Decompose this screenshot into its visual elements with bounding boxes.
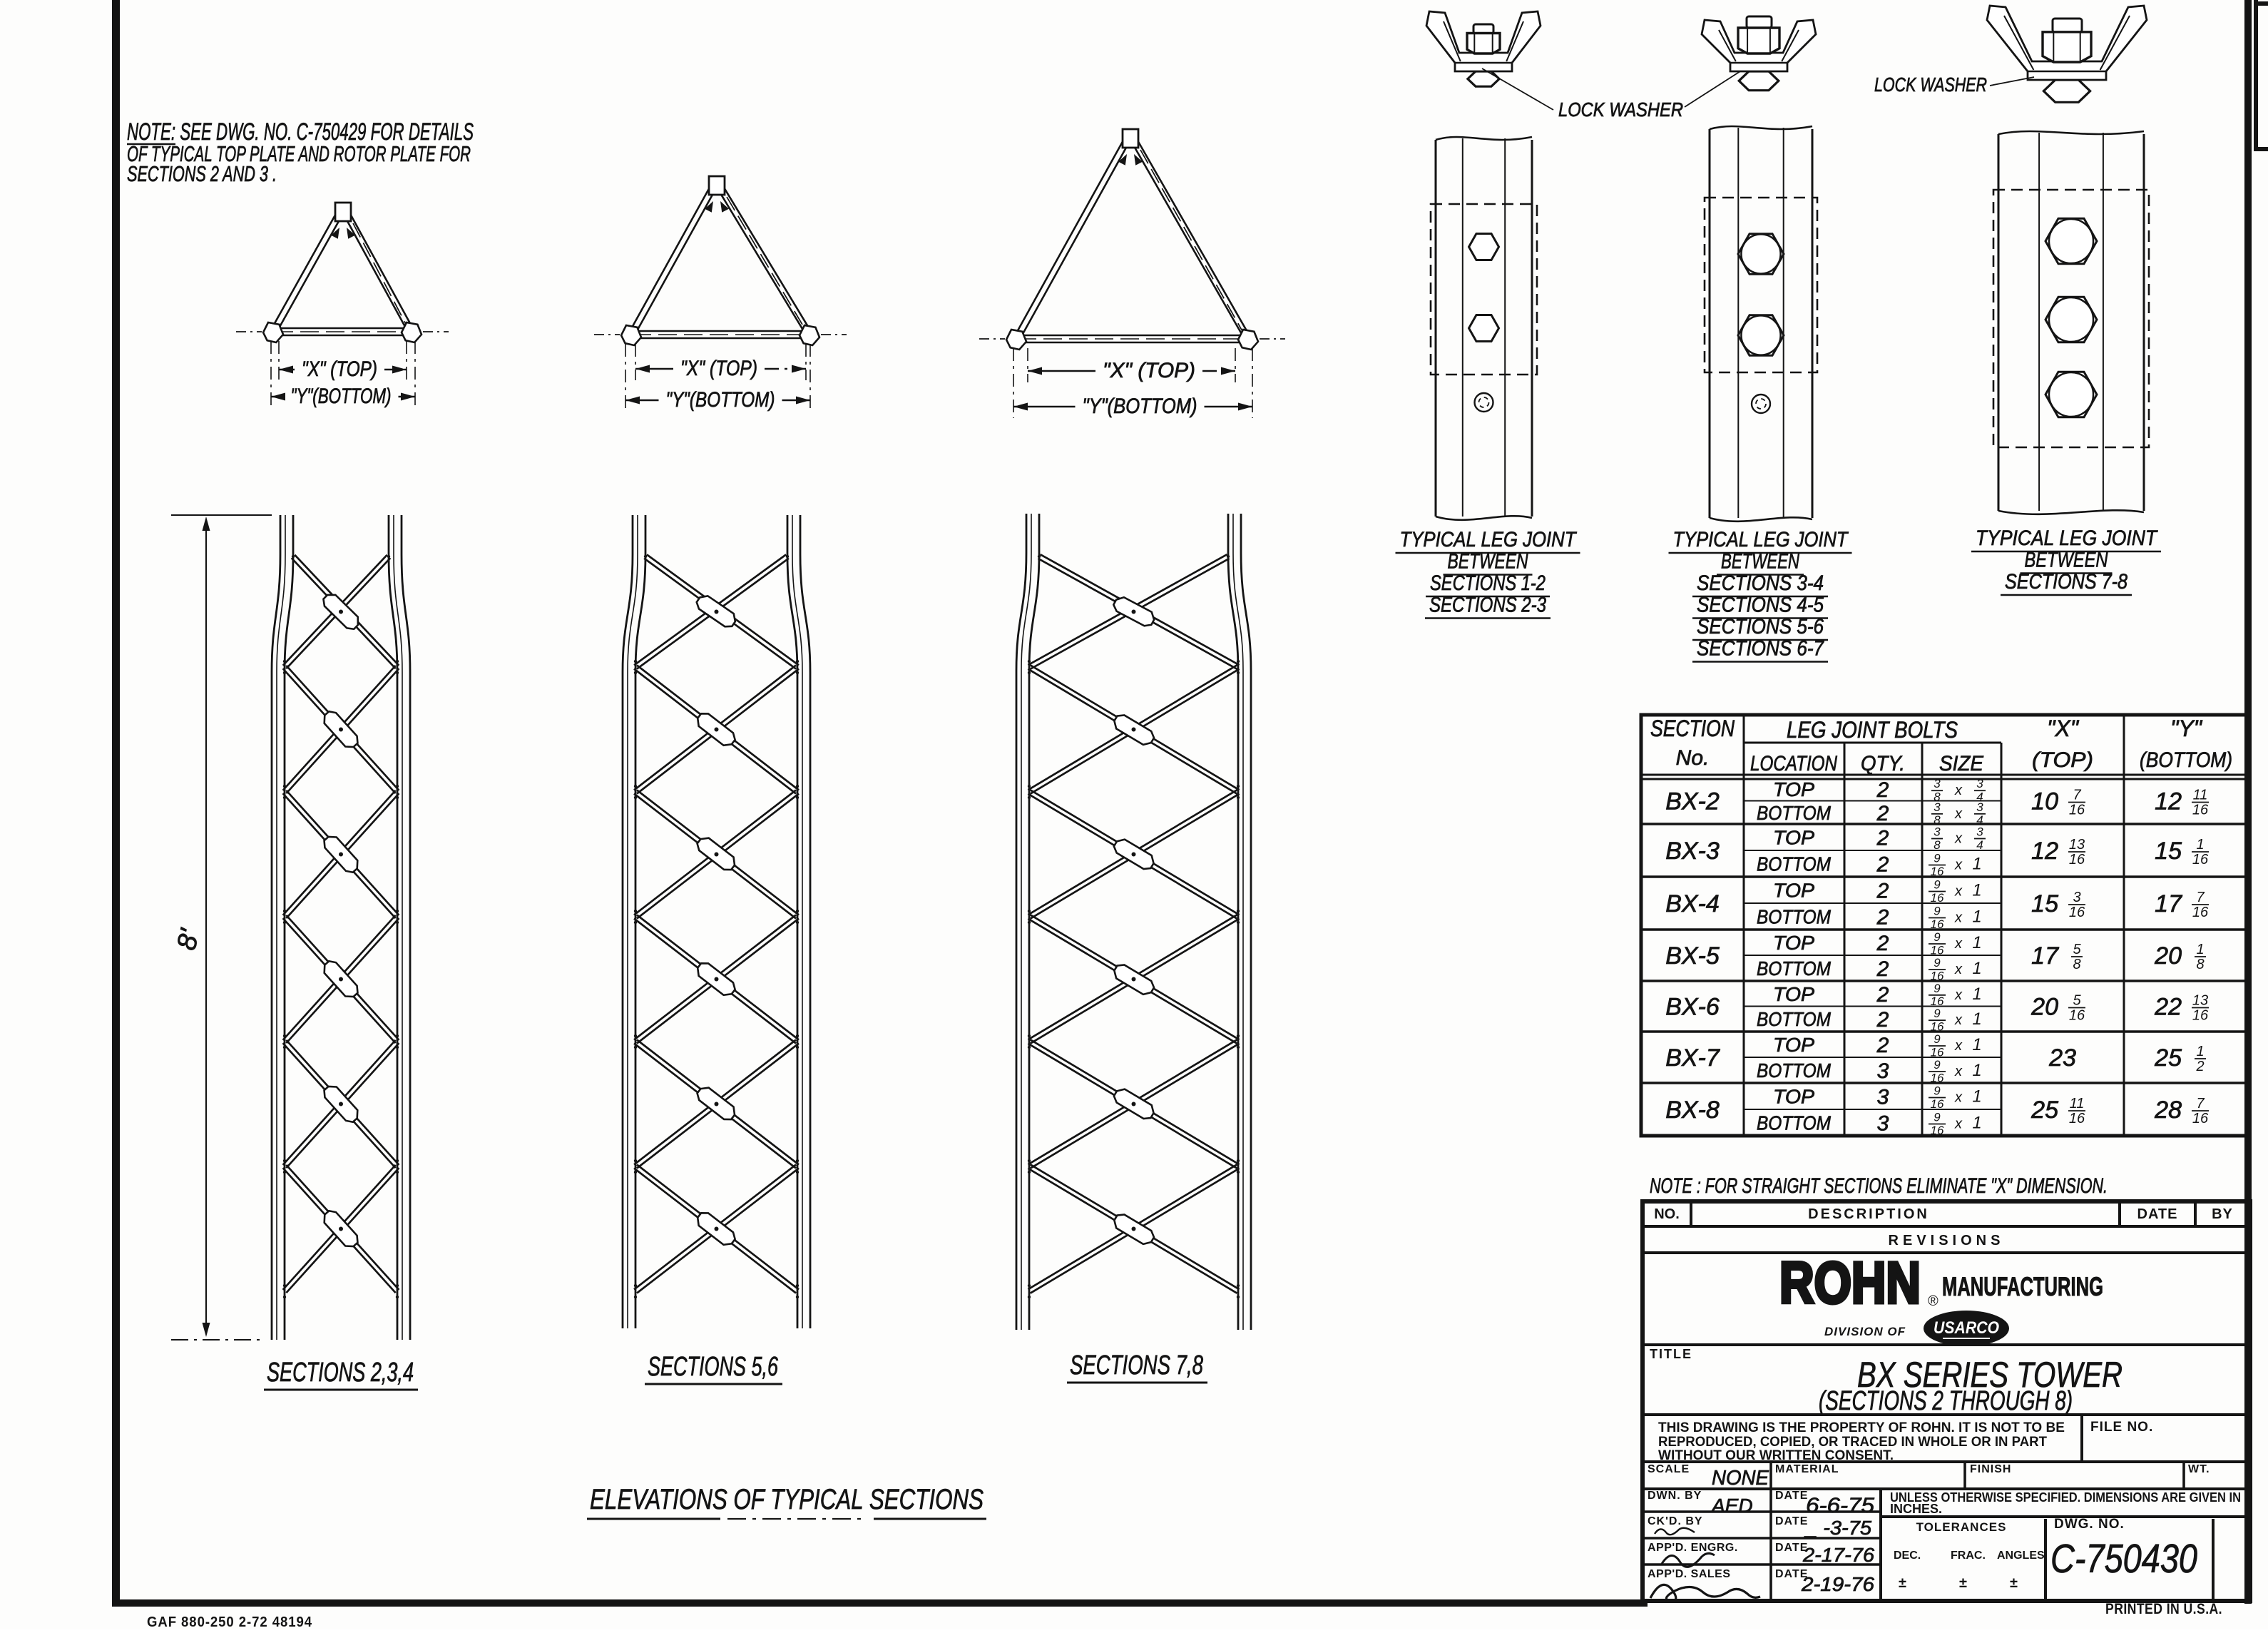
svg-text:17: 17 xyxy=(2031,942,2059,970)
svg-text:MANUFACTURING: MANUFACTURING xyxy=(1942,1272,2103,1301)
svg-text:BX-7: BX-7 xyxy=(1665,1044,1720,1072)
svg-text:16: 16 xyxy=(1931,944,1944,957)
svg-text:NONE: NONE xyxy=(1712,1467,1769,1490)
svg-text:4: 4 xyxy=(1976,838,1983,852)
svg-text:(BOTTOM): (BOTTOM) xyxy=(2140,748,2232,772)
svg-text:23: 23 xyxy=(2048,1044,2076,1072)
svg-text:x: x xyxy=(1954,936,1963,952)
svg-text:1: 1 xyxy=(1972,907,1981,927)
svg-text:9: 9 xyxy=(1934,930,1941,944)
svg-text:BETWEEN: BETWEEN xyxy=(1721,550,1799,574)
svg-text:16: 16 xyxy=(2192,1111,2209,1126)
svg-text:±: ± xyxy=(1899,1575,1906,1591)
svg-text:BX-8: BX-8 xyxy=(1665,1097,1720,1124)
svg-text:ELEVATIONS OF TYPICAL SECTI: ELEVATIONS OF TYPICAL SECTIONS xyxy=(590,1484,984,1515)
svg-text:1: 1 xyxy=(2196,942,2204,957)
svg-text:9: 9 xyxy=(1934,982,1941,995)
svg-text:x: x xyxy=(1954,910,1963,926)
svg-text:TOP: TOP xyxy=(1773,1034,1814,1056)
svg-text:®: ® xyxy=(1928,1293,1938,1309)
svg-text:LOCK WASHER: LOCK WASHER xyxy=(1558,98,1683,121)
svg-text:LOCATION: LOCATION xyxy=(1750,752,1837,775)
svg-text:22: 22 xyxy=(2154,994,2182,1021)
svg-text:APP'D. SALES: APP'D. SALES xyxy=(1648,1568,1731,1580)
svg-text:3: 3 xyxy=(1877,1112,1889,1136)
svg-text:3: 3 xyxy=(1877,1059,1889,1083)
svg-text:10: 10 xyxy=(2031,788,2058,815)
svg-text:2-17-76: 2-17-76 xyxy=(1802,1544,1874,1566)
svg-text:7: 7 xyxy=(2196,1096,2205,1111)
svg-text:9: 9 xyxy=(1934,852,1941,865)
svg-text:1: 1 xyxy=(1972,959,1981,978)
svg-text:SECTION: SECTION xyxy=(1650,716,1735,741)
svg-text:16: 16 xyxy=(2069,1008,2085,1024)
svg-text:2: 2 xyxy=(1876,906,1889,930)
svg-text:TOP: TOP xyxy=(1773,827,1814,849)
svg-text:16: 16 xyxy=(1931,865,1944,878)
svg-text:16: 16 xyxy=(2069,905,2085,920)
svg-text:1: 1 xyxy=(1972,1061,1981,1080)
svg-text:UNLESS OTHERWISE SPECIFIED. DI: UNLESS OTHERWISE SPECIFIED. DIMENSIONS A… xyxy=(1890,1490,2241,1505)
svg-text:9: 9 xyxy=(1934,878,1941,892)
svg-text:17: 17 xyxy=(2155,890,2182,917)
svg-text:2: 2 xyxy=(1876,983,1889,1007)
svg-text:_ -3-75: _ -3-75 xyxy=(1804,1517,1872,1539)
svg-text:16: 16 xyxy=(1931,891,1944,905)
svg-text:5: 5 xyxy=(2073,942,2081,957)
svg-text:9: 9 xyxy=(1934,905,1941,918)
svg-text:1: 1 xyxy=(1972,1087,1981,1107)
svg-text:16: 16 xyxy=(1931,970,1944,983)
svg-text:12: 12 xyxy=(2031,838,2058,865)
svg-text:3: 3 xyxy=(1934,800,1941,814)
svg-text:x: x xyxy=(1954,1116,1963,1132)
svg-text:TOP: TOP xyxy=(1773,983,1814,1005)
svg-text:DESCRIPTION: DESCRIPTION xyxy=(1808,1206,1929,1222)
svg-text:9: 9 xyxy=(1934,1084,1941,1098)
svg-text:PRINTED IN U.S.A.: PRINTED IN U.S.A. xyxy=(2105,1601,2222,1617)
svg-text:DWN. BY: DWN. BY xyxy=(1648,1490,1702,1502)
svg-text:SECTIONS 7-8: SECTIONS 7-8 xyxy=(2005,570,2127,594)
svg-text:WT.: WT. xyxy=(2188,1463,2210,1475)
svg-text:BOTTOM: BOTTOM xyxy=(1757,1008,1832,1030)
svg-text:TOP: TOP xyxy=(1773,932,1814,954)
svg-text:SECTIONS 2-3: SECTIONS 2-3 xyxy=(1429,594,1546,617)
svg-text:SIZE: SIZE xyxy=(1939,752,1984,775)
svg-text:SECTIONS 5,6: SECTIONS 5,6 xyxy=(648,1352,779,1382)
svg-text:3: 3 xyxy=(1976,800,1983,814)
svg-text:"Y": "Y" xyxy=(2170,716,2203,741)
svg-text:3: 3 xyxy=(1934,777,1941,790)
svg-text:NO.: NO. xyxy=(1654,1206,1680,1222)
svg-text:"Y"(BOTTOM): "Y"(BOTTOM) xyxy=(666,388,775,412)
svg-text:SECTIONS 2,3,4: SECTIONS 2,3,4 xyxy=(267,1358,414,1388)
svg-text:±: ± xyxy=(2010,1575,2018,1591)
svg-text:x: x xyxy=(1954,806,1963,822)
svg-text:x: x xyxy=(1954,783,1963,798)
svg-text:3: 3 xyxy=(1877,1086,1889,1109)
svg-text:SECTIONS 1-2: SECTIONS 1-2 xyxy=(1430,571,1546,595)
svg-text:2-19-76: 2-19-76 xyxy=(1801,1573,1875,1595)
svg-text:3: 3 xyxy=(1976,825,1983,839)
svg-text:16: 16 xyxy=(2192,1008,2209,1024)
svg-text:C-750430: C-750430 xyxy=(2050,1536,2197,1582)
svg-text:DWG. NO.: DWG. NO. xyxy=(2054,1517,2125,1532)
svg-text:3: 3 xyxy=(1934,825,1941,839)
svg-text:±: ± xyxy=(1959,1575,1967,1591)
svg-text:CK'D. BY: CK'D. BY xyxy=(1648,1515,1703,1527)
svg-text:SECTIONS 6-7: SECTIONS 6-7 xyxy=(1697,637,1824,661)
svg-text:TOLERANCES: TOLERANCES xyxy=(1916,1520,2007,1534)
svg-text:THIS DRAWING IS THE PROPERTY O: THIS DRAWING IS THE PROPERTY OF ROHN. IT… xyxy=(1658,1420,2065,1435)
svg-text:9: 9 xyxy=(1934,1111,1941,1124)
svg-text:BX-2: BX-2 xyxy=(1665,788,1720,815)
svg-text:NOTE : FOR STRAIGHT SECTIONS: NOTE : FOR STRAIGHT SECTIONS ELIMINATE "… xyxy=(1650,1174,2108,1198)
svg-text:x: x xyxy=(1954,1012,1963,1028)
svg-text:INCHES.: INCHES. xyxy=(1890,1502,1942,1516)
svg-text:1: 1 xyxy=(1972,933,1981,952)
svg-text:FILE NO.: FILE NO. xyxy=(2090,1420,2153,1435)
svg-text:2: 2 xyxy=(1876,802,1889,825)
svg-text:1: 1 xyxy=(1972,881,1981,900)
svg-text:BOTTOM: BOTTOM xyxy=(1757,853,1832,875)
svg-text:BOTTOM: BOTTOM xyxy=(1757,1112,1832,1134)
svg-text:25: 25 xyxy=(2154,1044,2182,1072)
svg-text:2: 2 xyxy=(1876,880,1889,903)
svg-text:No.: No. xyxy=(1676,746,1710,770)
svg-text:1: 1 xyxy=(1972,855,1981,874)
svg-text:BOTTOM: BOTTOM xyxy=(1757,957,1832,980)
svg-text:15: 15 xyxy=(2155,838,2182,865)
svg-text:MATERIAL: MATERIAL xyxy=(1775,1463,1839,1475)
svg-text:TOP: TOP xyxy=(1773,778,1814,800)
svg-text:2: 2 xyxy=(1876,778,1889,802)
svg-text:1: 1 xyxy=(1972,985,1981,1004)
svg-text:APP'D. ENGRG.: APP'D. ENGRG. xyxy=(1648,1542,1738,1554)
svg-text:AED: AED xyxy=(1710,1495,1753,1517)
svg-text:DIVISION OF: DIVISION OF xyxy=(1824,1325,1906,1338)
svg-text:5: 5 xyxy=(2073,993,2081,1009)
svg-text:2: 2 xyxy=(1876,853,1889,877)
svg-text:16: 16 xyxy=(2192,852,2209,868)
svg-text:BOTTOM: BOTTOM xyxy=(1757,802,1832,824)
svg-text:16: 16 xyxy=(2069,803,2085,818)
svg-text:ANGLES: ANGLES xyxy=(1997,1550,2045,1562)
svg-text:BX-4: BX-4 xyxy=(1665,890,1720,917)
svg-text:7: 7 xyxy=(2196,890,2205,905)
svg-text:13: 13 xyxy=(2192,993,2208,1009)
svg-text:BETWEEN: BETWEEN xyxy=(2025,549,2108,572)
svg-text:2: 2 xyxy=(1876,827,1889,850)
svg-text:TYPICAL LEG JOINT: TYPICAL LEG JOINT xyxy=(1976,526,2158,550)
svg-text:x: x xyxy=(1954,1038,1963,1054)
svg-text:BX-6: BX-6 xyxy=(1665,994,1720,1021)
svg-text:"X" (TOP): "X" (TOP) xyxy=(302,357,377,381)
svg-text:TYPICAL LEG JOINT: TYPICAL LEG JOINT xyxy=(1400,528,1578,551)
svg-text:"X" (TOP): "X" (TOP) xyxy=(680,357,757,380)
svg-text:WITHOUT OUR WRITTEN CONSENT.: WITHOUT OUR WRITTEN CONSENT. xyxy=(1658,1448,1894,1463)
svg-text:1: 1 xyxy=(1972,1009,1981,1029)
svg-text:9: 9 xyxy=(1934,1058,1941,1072)
svg-text:1: 1 xyxy=(1972,1114,1981,1133)
svg-text:16: 16 xyxy=(1931,1072,1944,1085)
svg-text:16: 16 xyxy=(2069,852,2085,868)
svg-text:BOTTOM: BOTTOM xyxy=(1757,906,1832,928)
svg-text:SECTIONS 5-6: SECTIONS 5-6 xyxy=(1697,615,1824,639)
svg-text:SECTIONS 2 AND 3 .: SECTIONS 2 AND 3 . xyxy=(127,161,277,186)
svg-text:"Y"(BOTTOM): "Y"(BOTTOM) xyxy=(291,385,392,408)
svg-text:DEC.: DEC. xyxy=(1894,1550,1921,1562)
svg-text:2: 2 xyxy=(1876,1008,1889,1032)
svg-text:2: 2 xyxy=(1876,1034,1889,1057)
svg-text:DATE: DATE xyxy=(2137,1206,2178,1222)
svg-text:SECTIONS 7,8: SECTIONS 7,8 xyxy=(1070,1350,1203,1380)
svg-text:QTY.: QTY. xyxy=(1861,752,1905,775)
svg-text:20: 20 xyxy=(2154,942,2182,970)
svg-text:FINISH: FINISH xyxy=(1970,1463,2011,1475)
svg-text:28: 28 xyxy=(2154,1097,2182,1124)
svg-text:x: x xyxy=(1954,884,1963,900)
svg-text:BX-3: BX-3 xyxy=(1665,838,1720,865)
svg-text:3: 3 xyxy=(2073,890,2080,905)
svg-text:16: 16 xyxy=(2069,1111,2085,1126)
svg-text:x: x xyxy=(1954,831,1963,847)
svg-text:x: x xyxy=(1954,1064,1963,1079)
svg-text:16: 16 xyxy=(1931,917,1944,931)
svg-text:x: x xyxy=(1954,858,1963,873)
svg-text:TOP: TOP xyxy=(1773,1086,1814,1108)
svg-text:"X" (TOP): "X" (TOP) xyxy=(1103,359,1195,382)
svg-text:25: 25 xyxy=(2031,1097,2058,1124)
svg-text:6-6-75: 6-6-75 xyxy=(1806,1494,1874,1517)
svg-text:x: x xyxy=(1954,987,1963,1003)
svg-text:x: x xyxy=(1954,1090,1963,1106)
svg-text:DATE: DATE xyxy=(1775,1490,1808,1502)
svg-text:11: 11 xyxy=(2070,1096,2085,1111)
svg-text:8: 8 xyxy=(1934,838,1941,852)
svg-text:REVISIONS: REVISIONS xyxy=(1889,1233,2005,1248)
svg-text:BX-5: BX-5 xyxy=(1665,942,1720,970)
svg-text:BY: BY xyxy=(2212,1206,2233,1222)
svg-text:TYPICAL LEG JOINT: TYPICAL LEG JOINT xyxy=(1673,528,1849,551)
svg-text:9: 9 xyxy=(1934,1007,1941,1020)
svg-text:16: 16 xyxy=(1931,1020,1944,1034)
svg-text:TITLE: TITLE xyxy=(1650,1347,1692,1361)
svg-text:16: 16 xyxy=(1931,1046,1944,1059)
svg-text:9: 9 xyxy=(1934,956,1941,970)
svg-text:"X": "X" xyxy=(2047,716,2080,741)
svg-text:8: 8 xyxy=(2073,957,2080,972)
svg-text:2: 2 xyxy=(1876,932,1889,955)
svg-text:9: 9 xyxy=(1934,1032,1941,1046)
svg-text:3: 3 xyxy=(1976,777,1983,790)
svg-text:SECTIONS 3-4: SECTIONS 3-4 xyxy=(1697,571,1824,595)
svg-text:2: 2 xyxy=(1876,957,1889,981)
svg-text:SECTIONS 4-5: SECTIONS 4-5 xyxy=(1697,594,1824,617)
svg-text:16: 16 xyxy=(1931,1097,1944,1111)
svg-text:TOP: TOP xyxy=(1773,880,1814,902)
svg-text:1: 1 xyxy=(2196,837,2204,853)
svg-text:1: 1 xyxy=(1972,1035,1981,1054)
svg-text:DATE: DATE xyxy=(1775,1515,1808,1527)
svg-text:LOCK WASHER: LOCK WASHER xyxy=(1874,73,1987,96)
svg-text:16: 16 xyxy=(2192,905,2209,920)
svg-text:11: 11 xyxy=(2193,788,2208,803)
svg-text:16: 16 xyxy=(1931,1124,1944,1137)
svg-text:ROHN: ROHN xyxy=(1779,1251,1921,1316)
svg-text:20: 20 xyxy=(2031,994,2058,1021)
svg-text:BOTTOM: BOTTOM xyxy=(1757,1059,1832,1082)
svg-text:(SECTIONS 2 THROUGH 8): (SECTIONS 2 THROUGH 8) xyxy=(1819,1386,2073,1416)
svg-text:"Y"(BOTTOM): "Y"(BOTTOM) xyxy=(1083,395,1197,418)
svg-text:LEG JOINT BOLTS: LEG JOINT BOLTS xyxy=(1787,717,1958,743)
svg-text:1: 1 xyxy=(2196,1044,2204,1059)
svg-text:16: 16 xyxy=(2192,803,2209,818)
svg-text:USARCO: USARCO xyxy=(1934,1318,1999,1338)
svg-text:SCALE: SCALE xyxy=(1648,1463,1690,1475)
svg-text:FRAC.: FRAC. xyxy=(1951,1550,1986,1562)
svg-text:8: 8 xyxy=(2196,957,2204,972)
svg-text:12: 12 xyxy=(2155,788,2182,815)
svg-text:15: 15 xyxy=(2031,890,2058,917)
svg-text:BETWEEN: BETWEEN xyxy=(1448,550,1528,574)
svg-text:7: 7 xyxy=(2073,788,2081,803)
svg-text:13: 13 xyxy=(2069,837,2085,853)
svg-text:GAF 880-250 2-72 48194: GAF 880-250 2-72 48194 xyxy=(147,1614,312,1629)
svg-text:(TOP): (TOP) xyxy=(2032,748,2093,772)
svg-text:2: 2 xyxy=(2195,1059,2204,1074)
svg-text:x: x xyxy=(1954,962,1963,977)
